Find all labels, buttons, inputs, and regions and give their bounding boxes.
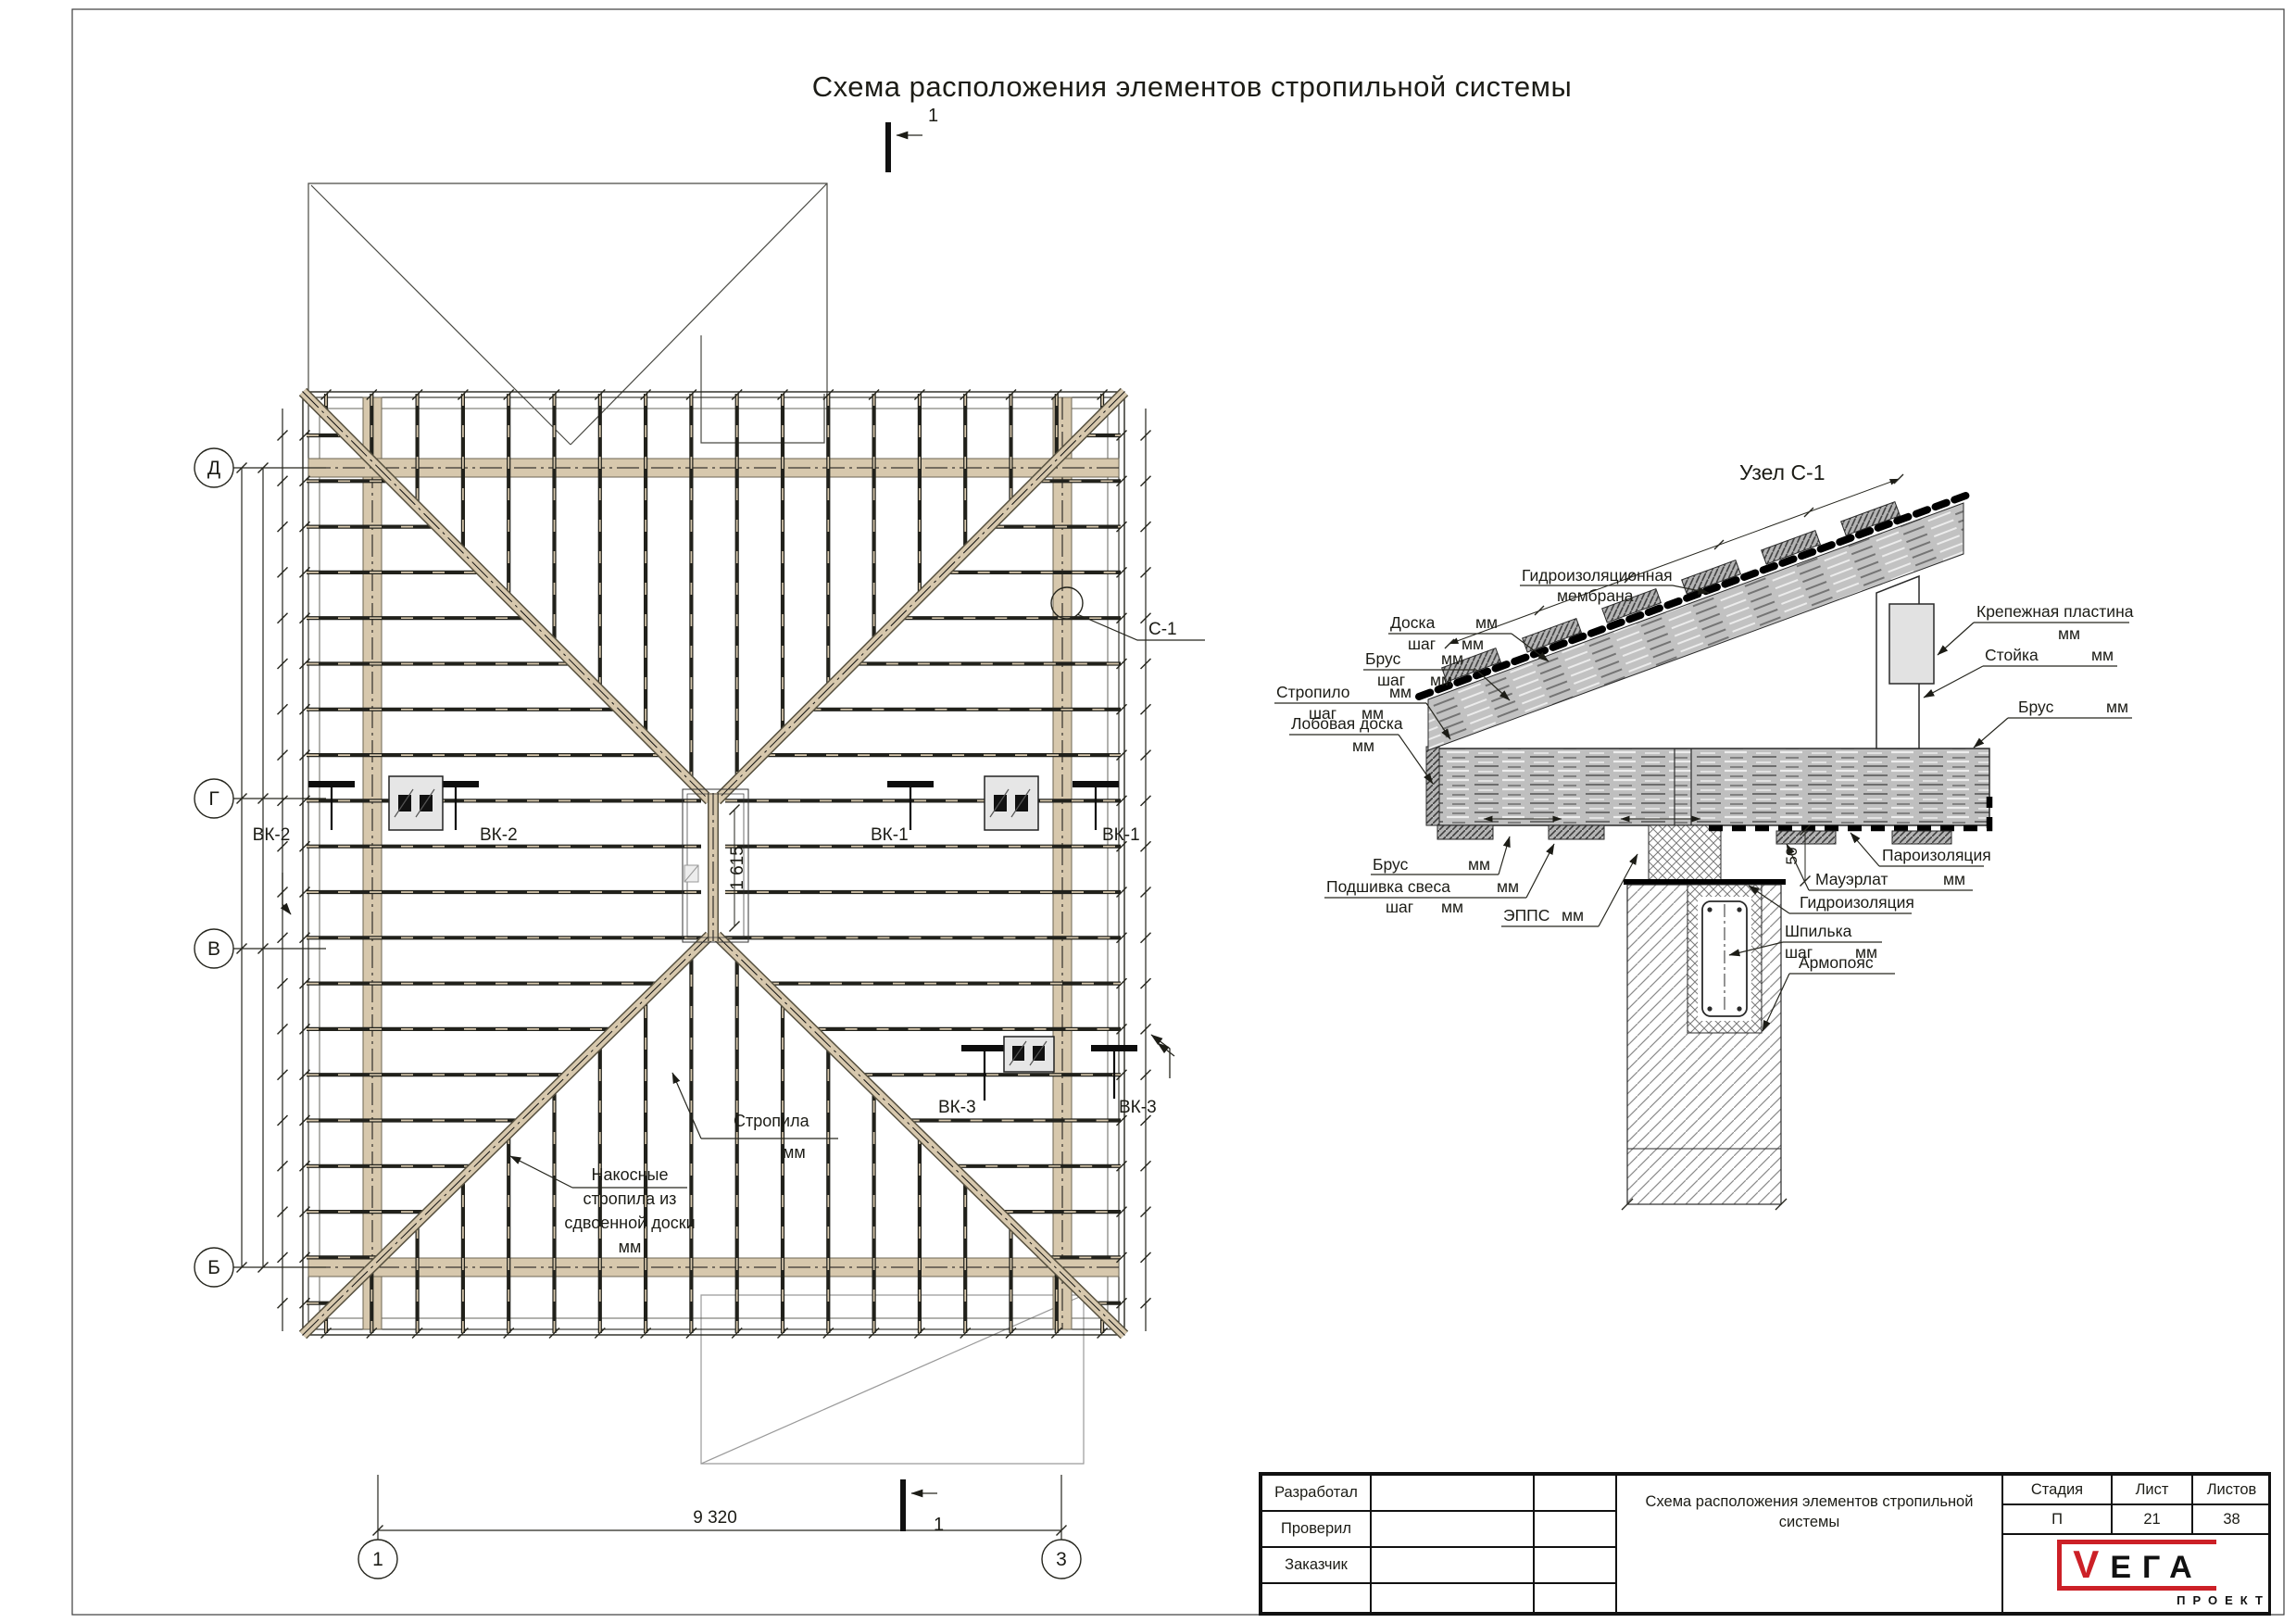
- fascia-board: [1426, 747, 1439, 825]
- svg-text:мм: мм: [1430, 671, 1452, 689]
- sheet-label: Лист: [2112, 1475, 2192, 1504]
- detail-c1: Узел С-1: [1274, 460, 2134, 1210]
- armopoyas: [1687, 885, 1762, 1033]
- titleblock-row-customer: Заказчик: [1261, 1547, 1371, 1583]
- label-stoyka: Стойка: [1985, 646, 2039, 664]
- svg-text:мм: мм: [2058, 624, 2080, 643]
- drawing: Схема расположения элементов стропильной…: [0, 0, 2296, 1623]
- svg-text:шаг: шаг: [1386, 898, 1413, 916]
- mauerlat-block: [1892, 831, 1951, 844]
- soffit-batten: [1437, 825, 1493, 839]
- titleblock-doc-title: Схема расположения элементов стропильной…: [1616, 1475, 2002, 1613]
- label-gidro: Гидроизоляция: [1800, 893, 1914, 912]
- label-membrane: Гидроизоляционная: [1522, 566, 1673, 585]
- svg-text:мм: мм: [1562, 906, 1584, 925]
- note-hip-l2: стропила из: [583, 1189, 677, 1208]
- svg-text:мембрана: мембрана: [1557, 586, 1634, 605]
- epps-block: [1649, 825, 1721, 882]
- sheet-value: 21: [2112, 1504, 2192, 1534]
- note-rafters-mm: мм: [783, 1143, 806, 1162]
- sheets-label: Листов: [2192, 1475, 2271, 1504]
- plan-notes: Стропила мм Накосные стропила из сдвоенн…: [510, 1073, 838, 1256]
- note-hip-l1: Накосные: [592, 1165, 669, 1184]
- vk1-right-label: ВК-1: [1102, 825, 1140, 845]
- logo-ega: ЕГА: [2110, 1553, 2202, 1582]
- section-mark-bottom: 1: [934, 1515, 944, 1535]
- svg-text:мм: мм: [1497, 877, 1519, 896]
- svg-text:мм: мм: [1441, 898, 1463, 916]
- label-krep: Крепежная пластина: [1976, 602, 2134, 621]
- label-mauerlat: Мауэрлат: [1815, 870, 1888, 888]
- label-shpilka: Шпилька: [1785, 922, 1852, 940]
- titleblock-row-developed: Разработал: [1261, 1475, 1371, 1511]
- vk2-label: ВК-2: [480, 825, 518, 845]
- hip-rafters: [303, 392, 1124, 1335]
- ridge-dimension: 1 615: [728, 846, 747, 890]
- label-doska: Доска: [1390, 613, 1436, 632]
- label-brus-top: Брус: [1365, 649, 1401, 668]
- svg-text:мм: мм: [1389, 683, 1411, 701]
- logo-subtitle: ПРОЕКТ: [2177, 1593, 2270, 1607]
- axis-b: Б: [207, 1257, 220, 1278]
- titleblock-row-checked: Проверил: [1261, 1511, 1371, 1547]
- label-paro: Пароизоляция: [1882, 846, 1991, 864]
- note-rafters: Стропила: [734, 1112, 810, 1130]
- adjacent-building-outline-top: [308, 183, 827, 445]
- axis-3: 3: [1056, 1549, 1067, 1570]
- section-mark-top: 1: [928, 106, 938, 126]
- svg-text:50: 50: [1783, 848, 1800, 865]
- axis-d: Д: [207, 458, 220, 479]
- title-block: Разработал Проверил Заказчик Схема распо…: [1259, 1472, 2271, 1616]
- svg-text:мм: мм: [2091, 646, 2114, 664]
- vega-logo: V ЕГА ПРОЕКТ: [2002, 1534, 2271, 1613]
- label-podshivka: Подшивка свеса: [1326, 877, 1450, 896]
- axis-1: 1: [372, 1549, 383, 1570]
- svg-text:мм: мм: [1462, 635, 1484, 653]
- svg-text:мм: мм: [2106, 698, 2128, 716]
- label-stropilo: Стропило: [1276, 683, 1350, 701]
- logo-v: V: [2073, 1547, 2099, 1582]
- svg-text:мм: мм: [1475, 613, 1498, 632]
- svg-text:мм: мм: [1943, 870, 1965, 888]
- detail-title: Узел С-1: [1739, 460, 1826, 484]
- drawing-sheet: Схема расположения элементов стропильной…: [0, 0, 2296, 1623]
- stage-label: Стадия: [2002, 1475, 2112, 1504]
- note-hip-l3: сдвоенной доски: [564, 1214, 695, 1232]
- vk2-left-label: ВК-2: [253, 825, 291, 845]
- label-armopoyas: Армопояс: [1799, 953, 1874, 972]
- label-epps: ЭППС: [1503, 906, 1549, 925]
- callout-c1: С-1: [1051, 587, 1205, 640]
- vk3-right-label: ВК-3: [1119, 1098, 1157, 1117]
- vk3-label: ВК-3: [938, 1098, 976, 1117]
- svg-text:мм: мм: [1468, 855, 1490, 874]
- axis-g: Г: [208, 788, 219, 810]
- page-title: Схема расположения элементов стропильной…: [812, 70, 1573, 103]
- svg-text:шаг: шаг: [1408, 635, 1436, 653]
- note-hip-l4: мм: [619, 1238, 642, 1256]
- vk1-label: ВК-1: [871, 825, 909, 845]
- adjacent-building-outline-bottom: [701, 1295, 1084, 1464]
- svg-text:мм: мм: [1352, 736, 1374, 755]
- svg-text:мм: мм: [1441, 649, 1463, 668]
- section-marks: 1 1: [885, 106, 944, 1535]
- mauerlat-block: [1776, 831, 1836, 844]
- beam: [1438, 749, 1989, 825]
- fixing-plate: [1889, 604, 1934, 684]
- callout-c1-label: С-1: [1148, 620, 1177, 639]
- stage-value: П: [2002, 1504, 2112, 1534]
- label-brus-bottom: Брус: [1373, 855, 1409, 874]
- soffit-batten: [1549, 825, 1604, 839]
- dim-9320: 9 320: [693, 1508, 737, 1528]
- label-lobovaya: Лобовая доска: [1291, 714, 1403, 733]
- titleblock-row-empty: [1261, 1583, 1371, 1613]
- axis-v: В: [207, 938, 220, 960]
- label-brus-right: Брус: [2018, 698, 2054, 716]
- sheets-value: 38: [2192, 1504, 2271, 1534]
